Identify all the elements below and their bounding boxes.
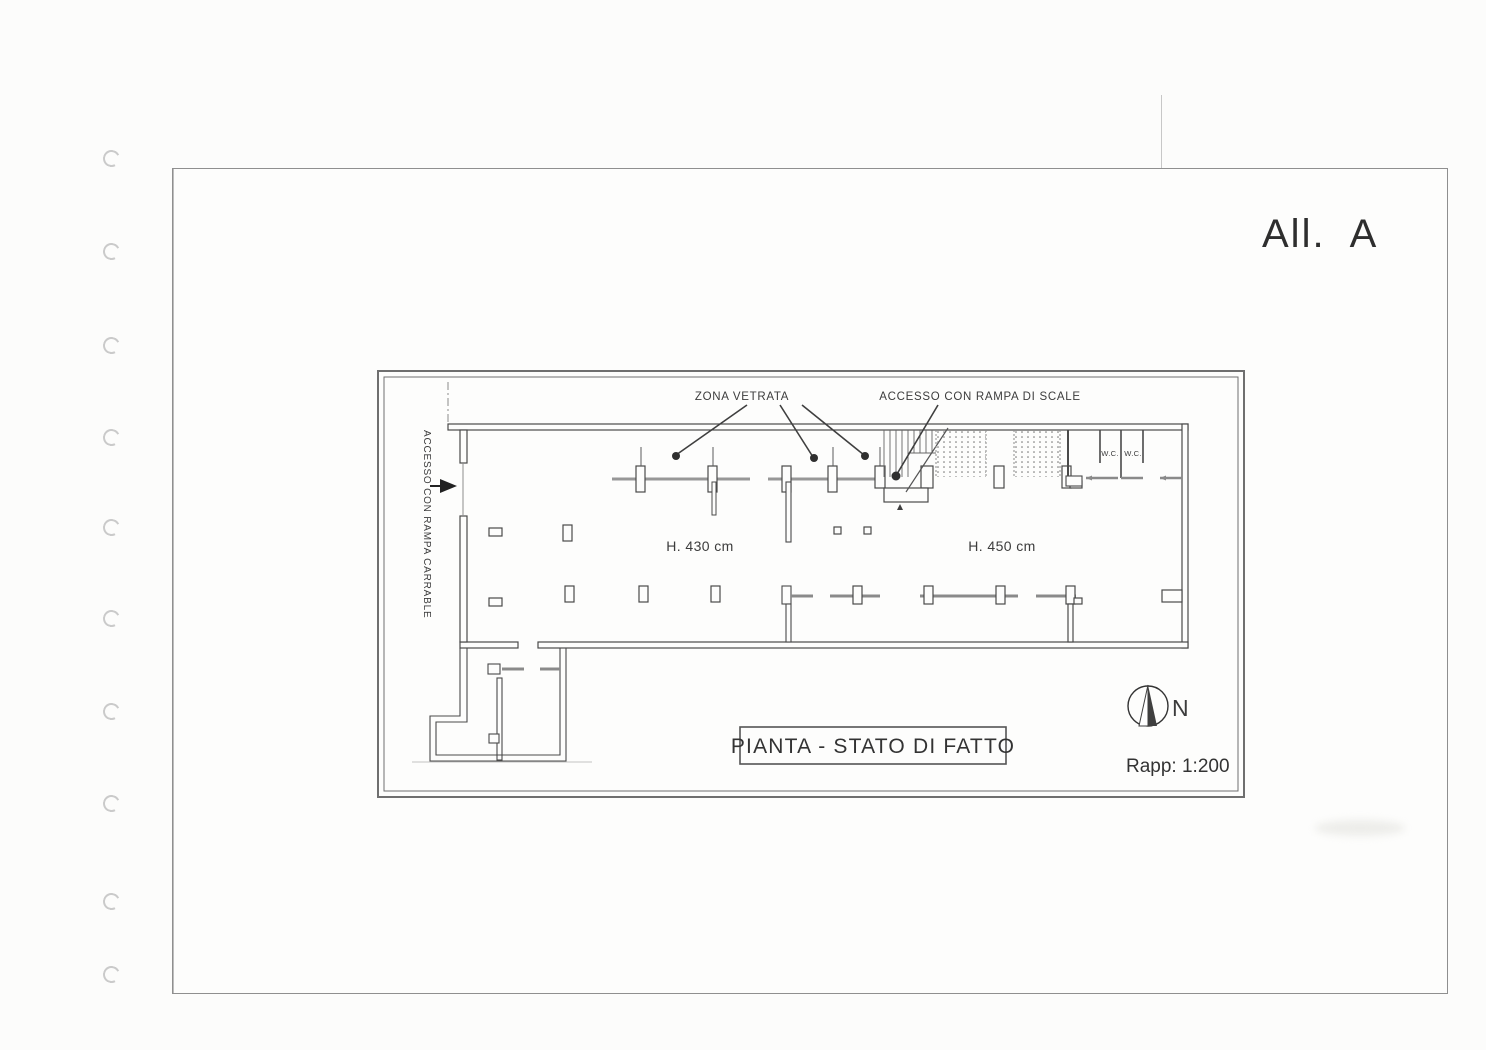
left-wall-upper [460, 430, 467, 463]
partition [1068, 604, 1073, 642]
wc-rooms: W.C. W.C. [1066, 430, 1182, 486]
plan-title: PIANTA - STATO DI FATTO [731, 735, 1015, 758]
glazed-zone [612, 447, 880, 515]
column [834, 527, 841, 534]
scale-label: Rapp: 1:200 [1126, 756, 1230, 777]
top-wall [448, 424, 1188, 430]
column [489, 528, 502, 536]
building-walls [448, 424, 1188, 648]
lower-wing [430, 648, 566, 761]
entry-vestibule [884, 488, 928, 502]
title-box: PIANTA - STATO DI FATTO [731, 727, 1015, 764]
driveway-arrow-icon [430, 479, 457, 493]
column-row [791, 586, 1182, 642]
column-foot [1074, 598, 1082, 604]
height-right-label: H. 450 cm [968, 538, 1035, 554]
window-mullion [636, 466, 645, 492]
column [489, 598, 502, 606]
window-mullion [828, 466, 837, 492]
height-left-label: H. 430 cm [666, 538, 733, 554]
central-partition [782, 482, 791, 642]
bottom-wall-right [538, 642, 1188, 648]
column [711, 586, 720, 602]
column [864, 527, 871, 534]
scanned-page: All. A [0, 0, 1486, 1050]
column [565, 586, 574, 602]
north-arrow-icon: N [1128, 685, 1189, 726]
column [853, 586, 862, 604]
north-label: N [1172, 695, 1189, 721]
bottom-wall-left [460, 642, 518, 648]
column [563, 525, 572, 541]
floor-plan-drawing: W.C. W.C. [0, 0, 1486, 1050]
column [639, 586, 648, 602]
glazed-zone-label: ZONA VETRATA [695, 391, 789, 403]
right-wall [1182, 424, 1188, 648]
stair-access-label: ACCESSO CON RAMPA DI SCALE [879, 391, 1080, 403]
column [996, 586, 1005, 604]
wall-pier [1162, 590, 1182, 602]
threshold-arrow [897, 504, 903, 510]
wc-left-label: W.C. [1101, 449, 1118, 458]
wc-right-label: W.C. [1124, 449, 1141, 458]
driveway-access-label: ACCESSO CON RAMPA CARRABLE [421, 430, 432, 618]
column [924, 586, 933, 604]
left-wall-lower [460, 516, 467, 642]
